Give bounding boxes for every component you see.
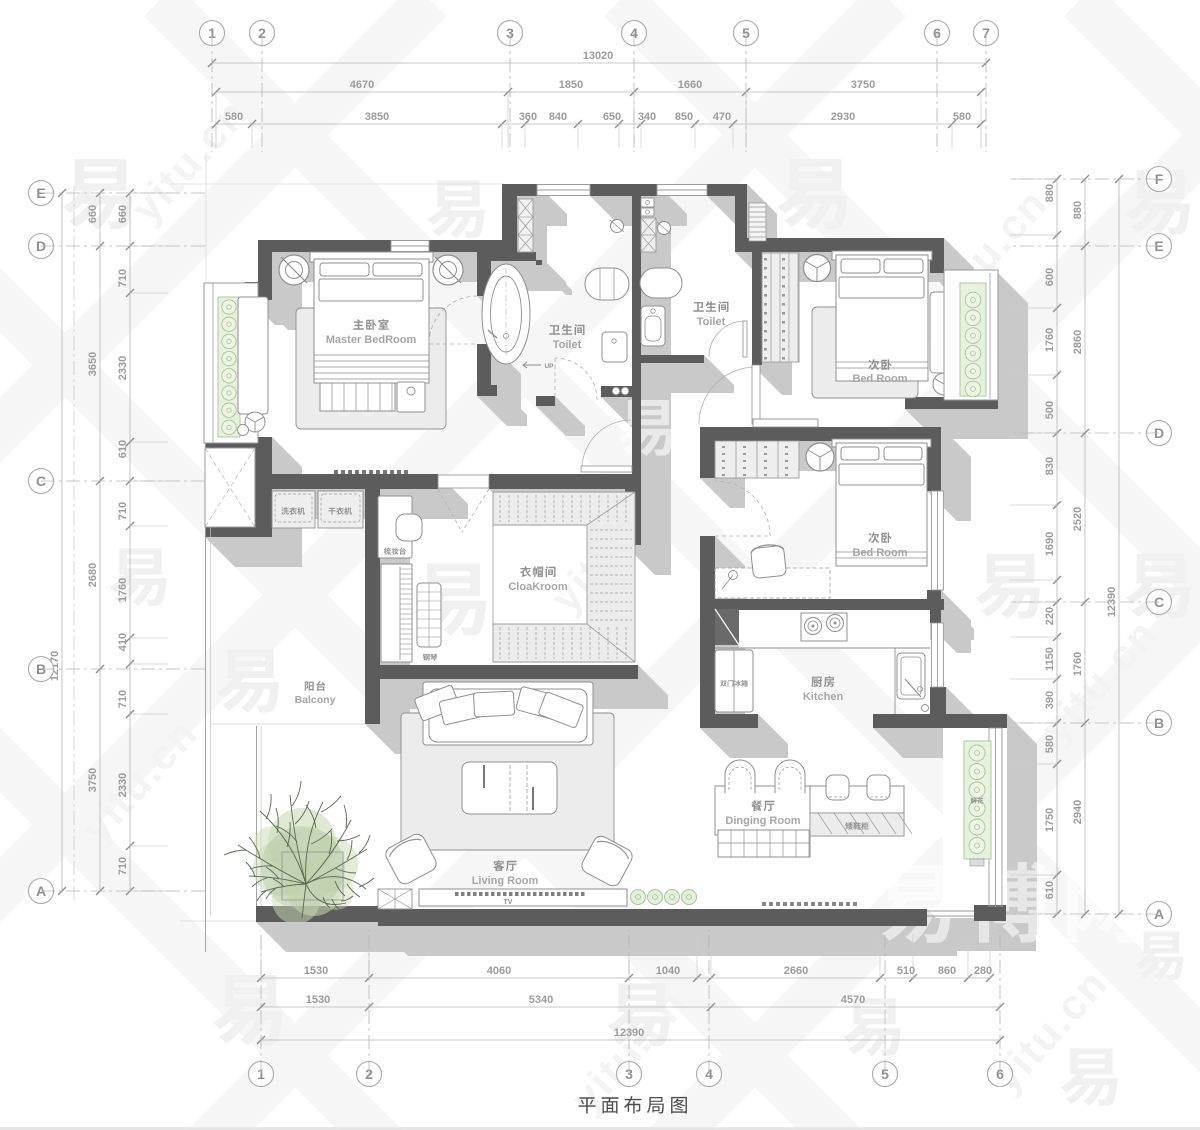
svg-text:580: 580 bbox=[953, 111, 971, 123]
svg-text:Dinging Room: Dinging Room bbox=[725, 815, 800, 827]
svg-text:1850: 1850 bbox=[559, 79, 583, 91]
svg-text:410: 410 bbox=[117, 633, 129, 651]
svg-text:3850: 3850 bbox=[365, 111, 389, 123]
svg-text:830: 830 bbox=[1044, 457, 1056, 475]
svg-text:1690: 1690 bbox=[1044, 532, 1056, 556]
svg-text:880: 880 bbox=[1044, 184, 1056, 202]
svg-text:220: 220 bbox=[1044, 607, 1056, 625]
svg-text:1660: 1660 bbox=[678, 79, 702, 91]
svg-text:Toilet: Toilet bbox=[697, 316, 726, 328]
svg-text:Living Room: Living Room bbox=[472, 875, 539, 887]
svg-text:UP: UP bbox=[544, 363, 554, 370]
svg-text:2520: 2520 bbox=[1072, 507, 1084, 531]
svg-text:580: 580 bbox=[225, 111, 243, 123]
svg-text:4570: 4570 bbox=[841, 994, 865, 1006]
svg-text:880: 880 bbox=[1072, 201, 1084, 219]
svg-text:3750: 3750 bbox=[87, 768, 99, 792]
svg-text:3650: 3650 bbox=[87, 352, 99, 376]
svg-text:4060: 4060 bbox=[487, 965, 511, 977]
svg-text:2940: 2940 bbox=[1072, 800, 1084, 824]
svg-text:660: 660 bbox=[87, 205, 99, 223]
svg-text:660: 660 bbox=[117, 205, 129, 223]
svg-text:4670: 4670 bbox=[350, 79, 374, 91]
svg-text:5340: 5340 bbox=[529, 994, 553, 1006]
svg-text:710: 710 bbox=[117, 269, 129, 287]
svg-text:1150: 1150 bbox=[1044, 647, 1056, 671]
svg-text:1760: 1760 bbox=[117, 578, 129, 602]
svg-text:510: 510 bbox=[897, 965, 915, 977]
svg-text:470: 470 bbox=[713, 111, 731, 123]
svg-text:710: 710 bbox=[117, 502, 129, 520]
svg-text:1040: 1040 bbox=[656, 965, 680, 977]
svg-text:2930: 2930 bbox=[831, 111, 855, 123]
svg-text:710: 710 bbox=[117, 857, 129, 875]
svg-text:280: 280 bbox=[974, 965, 992, 977]
svg-text:2680: 2680 bbox=[87, 563, 99, 587]
svg-text:2660: 2660 bbox=[784, 965, 808, 977]
svg-text:390: 390 bbox=[1044, 691, 1056, 709]
svg-text:Toilet: Toilet bbox=[553, 339, 582, 351]
svg-text:1750: 1750 bbox=[1044, 808, 1056, 832]
svg-text:650: 650 bbox=[603, 111, 621, 123]
svg-text:710: 710 bbox=[117, 690, 129, 708]
svg-text:1760: 1760 bbox=[1044, 328, 1056, 352]
svg-text:3750: 3750 bbox=[851, 79, 875, 91]
svg-text:1760: 1760 bbox=[1072, 652, 1084, 676]
svg-text:1530: 1530 bbox=[306, 994, 330, 1006]
svg-text:TV: TV bbox=[504, 899, 513, 906]
svg-text:610: 610 bbox=[117, 440, 129, 458]
svg-text:2330: 2330 bbox=[117, 773, 129, 797]
svg-text:Kitchen: Kitchen bbox=[803, 691, 844, 703]
svg-text:Master BedRoom: Master BedRoom bbox=[326, 334, 417, 346]
svg-text:Balcony: Balcony bbox=[295, 694, 336, 706]
svg-text:CloaKroom: CloaKroom bbox=[508, 581, 568, 593]
svg-text:1530: 1530 bbox=[304, 965, 328, 977]
svg-text:2330: 2330 bbox=[117, 356, 129, 380]
svg-text:340: 340 bbox=[638, 111, 656, 123]
svg-text:610: 610 bbox=[1044, 881, 1056, 899]
svg-text:2860: 2860 bbox=[1072, 330, 1084, 354]
svg-text:360: 360 bbox=[519, 111, 537, 123]
svg-text:580: 580 bbox=[1044, 735, 1056, 753]
svg-text:13020: 13020 bbox=[583, 50, 614, 62]
svg-text:Bed Room: Bed Room bbox=[853, 373, 908, 385]
svg-text:500: 500 bbox=[1044, 401, 1056, 419]
svg-text:600: 600 bbox=[1044, 268, 1056, 286]
svg-text:860: 860 bbox=[938, 965, 956, 977]
svg-text:850: 850 bbox=[675, 111, 693, 123]
svg-text:840: 840 bbox=[549, 111, 567, 123]
svg-text:Bed Room: Bed Room bbox=[853, 547, 908, 559]
